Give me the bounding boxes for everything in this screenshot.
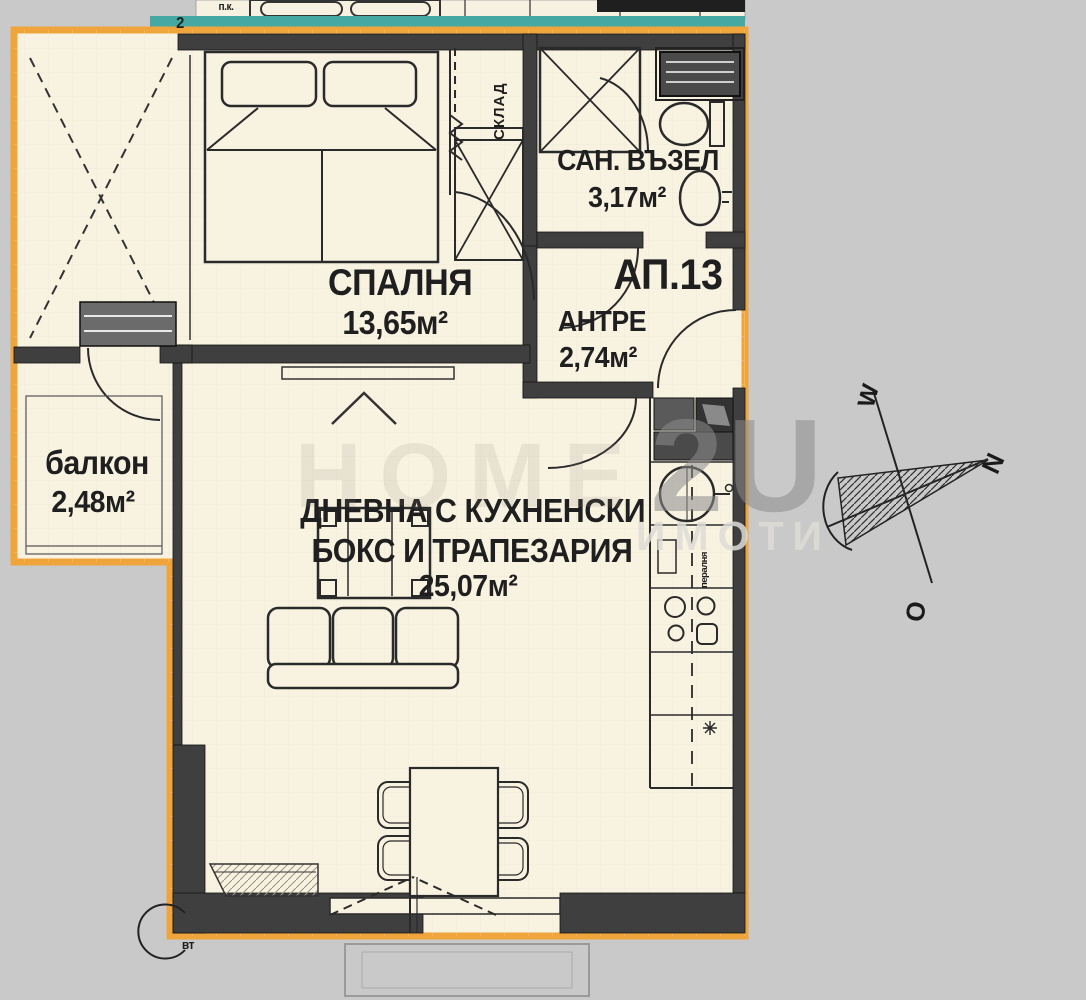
storage-label: СКЛАД: [492, 55, 507, 140]
lower-balcony-outline: [345, 944, 589, 996]
double-bed: [205, 52, 438, 262]
bedroom-label: СПАЛНЯ: [328, 264, 466, 301]
vent-shaft: [656, 48, 744, 100]
kitchen-cabinet: [654, 398, 694, 430]
apartment-number: АП.13: [598, 254, 738, 297]
hallway-label: АНТРЕ: [552, 308, 651, 337]
living-room-label-line1: ДНЕВНА С КУХНЕНСКИ: [300, 494, 628, 527]
top-note-label: п.к.: [208, 2, 245, 13]
vent-label: вт: [170, 938, 207, 951]
living-room-label-line2: БОКС И ТРАПЕЗАРИЯ: [311, 534, 620, 567]
fridge: [654, 432, 733, 460]
balcony-window-sill: [80, 302, 176, 346]
asterisk-mark: [703, 721, 717, 735]
compass-rose: [823, 390, 988, 583]
radiator: [210, 864, 318, 896]
floor-plan-page: СПАЛНЯ 13,65м² САН. ВЪЗЕЛ 3,17м² АП.13 А…: [0, 0, 1086, 1000]
hallway-area: 2,74м²: [552, 344, 644, 373]
bathroom-label: САН. ВЪЗЕЛ: [546, 147, 730, 176]
bedroom-area: 13,65м²: [335, 306, 455, 339]
compass-needle: [838, 460, 988, 545]
wall-mark-label: 2: [169, 16, 191, 32]
bathroom-area: 3,17м²: [576, 184, 677, 213]
dining-table: [410, 768, 498, 896]
balcony-label: балкон: [45, 446, 150, 479]
washing-machine-label: пералня: [700, 526, 710, 588]
living-room-area: 25,07м²: [413, 570, 523, 601]
balcony-area: 2,48м²: [39, 486, 148, 517]
